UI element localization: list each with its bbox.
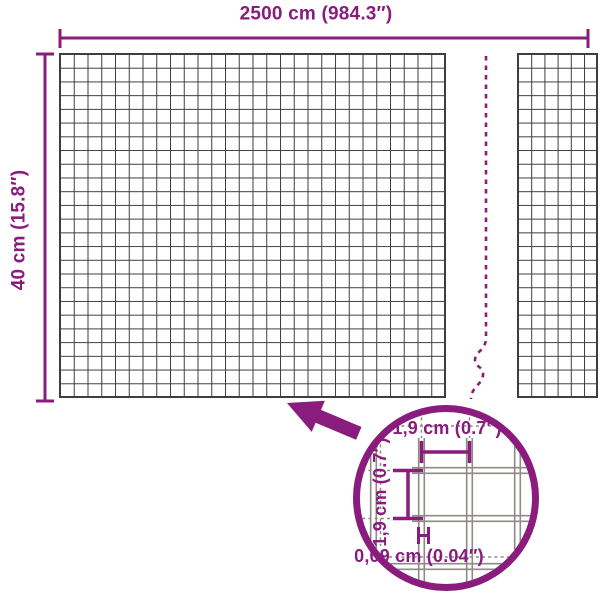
- detail-arrow-icon: [287, 401, 362, 440]
- detail-dimension-markers: [393, 441, 470, 544]
- width-dimension-line: [60, 29, 588, 48]
- width-dimension-label: 2500 cm (984.3″): [240, 5, 393, 24]
- height-dimension-line: [36, 54, 54, 401]
- mesh-panel-right: [518, 54, 597, 397]
- cell-height-label: 1,9 cm (0.7″): [371, 437, 389, 546]
- wire-thickness-label: 0,09 cm (0.04″): [354, 547, 484, 565]
- cell-width-marker: [422, 441, 470, 463]
- diagram-canvas: [0, 0, 600, 600]
- height-dimension-label: 40 cm (15.8″): [10, 170, 29, 291]
- break-line-icon: [471, 56, 486, 399]
- cell-width-label: 1,9 cm (0.7″): [392, 419, 501, 437]
- mesh-panel-main: [60, 54, 445, 397]
